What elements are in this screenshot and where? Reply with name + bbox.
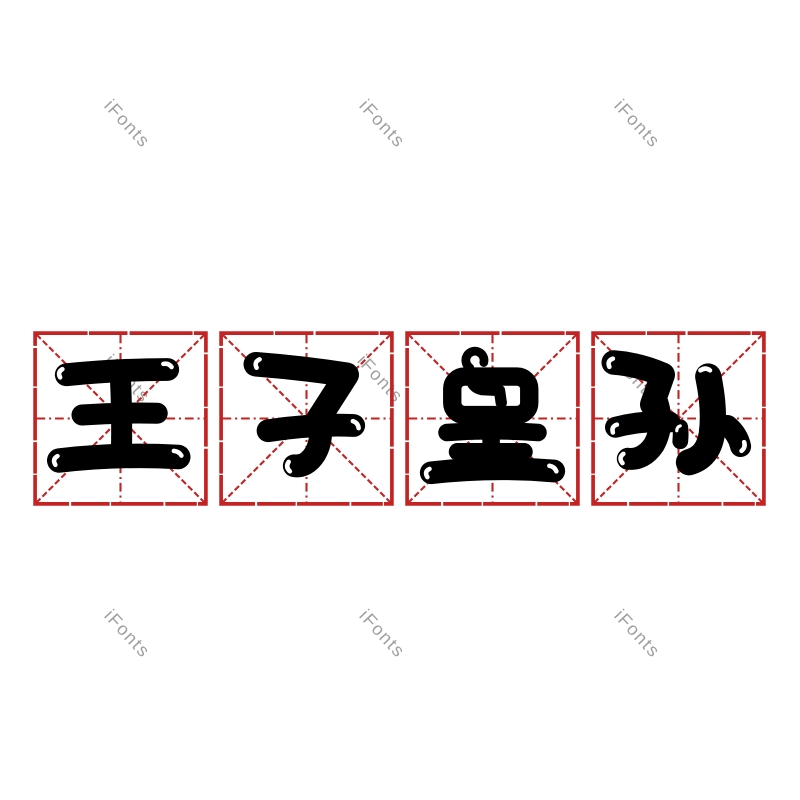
grid-cell-zi: 子 xyxy=(219,331,394,506)
glyph-huang xyxy=(431,351,554,473)
font-preview-canvas: 王子皇孙 iFontsiFontsiFontsiFontsiFontsiFont… xyxy=(0,0,800,800)
mizige-glyph-svg xyxy=(591,331,766,506)
grid-cell-wang: 王 xyxy=(33,331,208,506)
watermark-text: iFonts xyxy=(355,606,410,663)
mizige-glyph-svg xyxy=(405,331,580,506)
glyph-sun xyxy=(614,363,741,463)
watermark-text: iFonts xyxy=(610,606,665,663)
mizige-glyph-svg xyxy=(33,331,208,506)
grid-cell-sun: 孙 xyxy=(591,331,766,506)
watermark-text: iFonts xyxy=(100,606,155,663)
watermark-text: iFonts xyxy=(610,96,665,153)
watermark-text: iFonts xyxy=(355,96,410,153)
character-grid: 王 xyxy=(33,331,766,506)
grid-cell-huang: 皇 xyxy=(405,331,580,506)
watermark-text: iFonts xyxy=(100,96,155,153)
mizige-glyph-svg xyxy=(219,331,394,506)
glyph-wang xyxy=(59,370,178,461)
